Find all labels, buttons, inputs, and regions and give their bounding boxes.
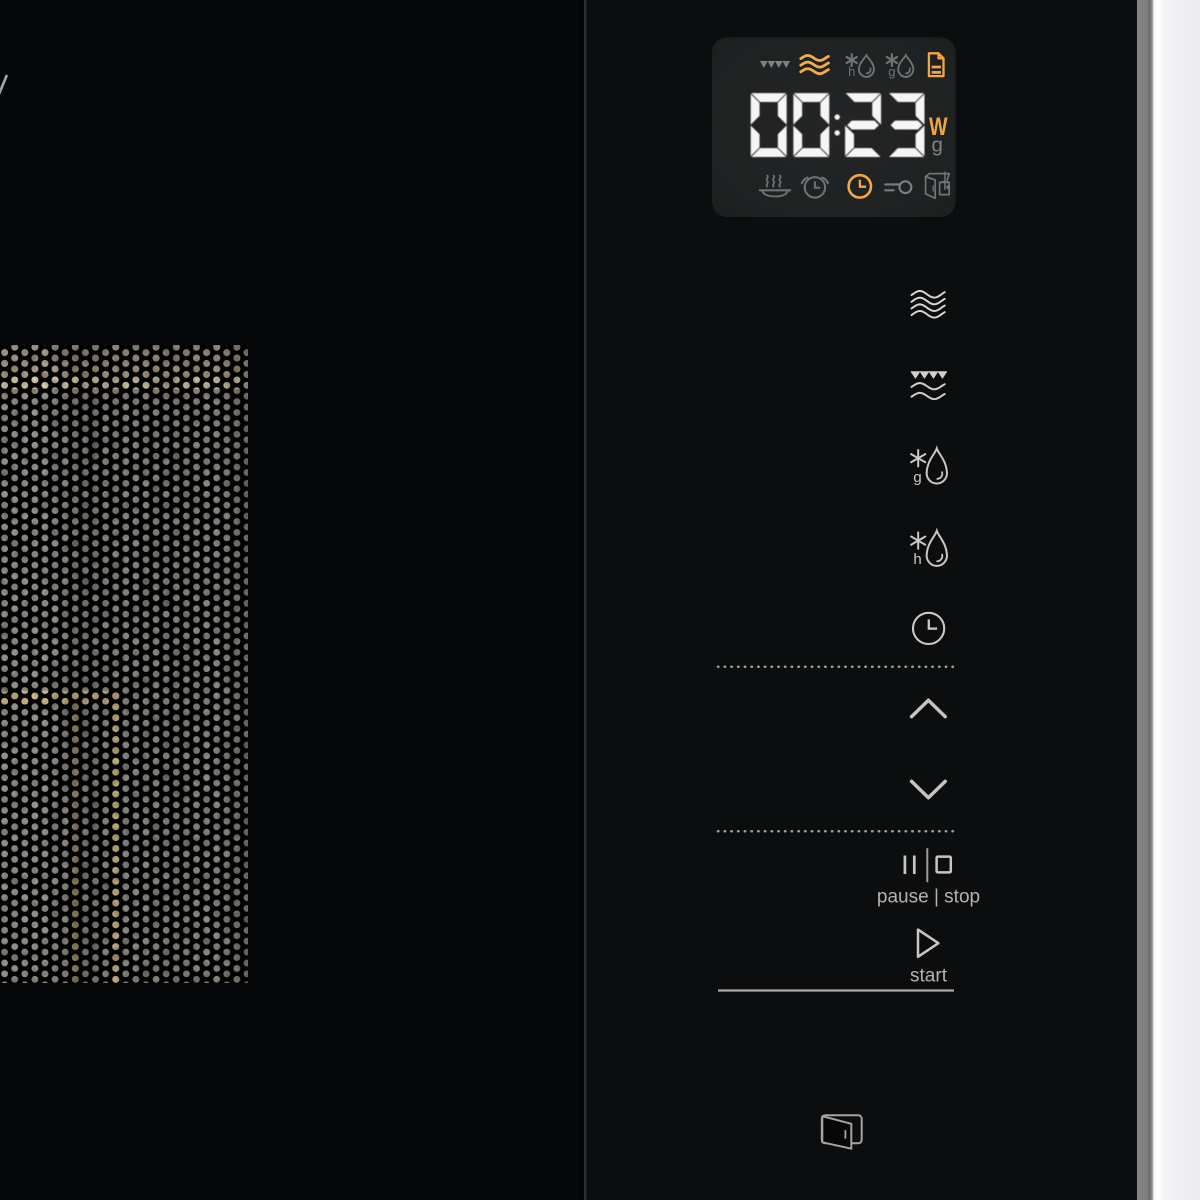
svg-text:h: h [913, 551, 921, 568]
svg-text:start: start [910, 966, 948, 987]
svg-text:pause | stop: pause | stop [877, 887, 980, 908]
svg-text:g: g [913, 469, 921, 486]
svg-text:h: h [848, 64, 855, 79]
svg-text:g: g [932, 134, 943, 157]
svg-text:g: g [888, 64, 895, 79]
